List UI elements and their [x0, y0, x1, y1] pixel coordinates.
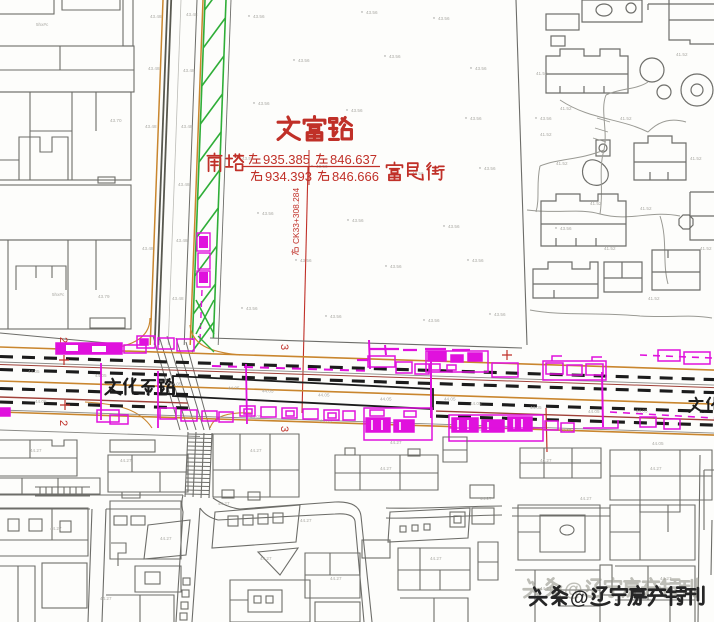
svg-text:41.52: 41.52: [536, 71, 548, 76]
svg-text:44.05: 44.05: [262, 389, 274, 394]
svg-text:44.27: 44.27: [430, 556, 442, 561]
svg-text:43.56: 43.56: [330, 314, 342, 319]
svg-text:44.05: 44.05: [470, 401, 482, 406]
svg-text:44.27: 44.27: [250, 448, 262, 453]
svg-text:44.27: 44.27: [380, 466, 392, 471]
svg-text:44.27: 44.27: [650, 466, 662, 471]
svg-text:43.56: 43.56: [390, 264, 402, 269]
svg-text:43.48: 43.48: [181, 124, 193, 129]
svg-text:43.48: 43.48: [186, 12, 198, 17]
svg-text:44.27: 44.27: [100, 596, 112, 601]
svg-text:43.48: 43.48: [178, 182, 190, 187]
svg-text:41.52: 41.52: [590, 201, 602, 206]
svg-text:44.27: 44.27: [330, 576, 342, 581]
svg-text:44.27: 44.27: [300, 518, 312, 523]
svg-text:@: @: [570, 588, 589, 609]
svg-text:41.52: 41.52: [540, 132, 552, 137]
svg-text:44.27: 44.27: [540, 458, 552, 463]
svg-text:44.05: 44.05: [380, 396, 392, 401]
svg-text:43.56: 43.56: [475, 66, 487, 71]
svg-text:41.52: 41.52: [620, 116, 632, 121]
svg-text:43.56: 43.56: [258, 101, 270, 106]
svg-text:44.27: 44.27: [390, 440, 402, 445]
svg-text:43.48: 43.48: [145, 124, 157, 129]
svg-text:43.56: 43.56: [438, 16, 450, 21]
svg-text:44.05: 44.05: [320, 418, 332, 423]
svg-text:3: 3: [278, 426, 290, 432]
svg-text:44.05: 44.05: [28, 369, 40, 374]
svg-text:43.56: 43.56: [540, 116, 552, 121]
svg-text:44.05: 44.05: [652, 441, 664, 446]
svg-text:43.56: 43.56: [351, 108, 363, 113]
svg-text:43.56: 43.56: [262, 211, 274, 216]
svg-text:41.52: 41.52: [676, 52, 688, 57]
svg-text:846.637: 846.637: [330, 152, 377, 167]
svg-text:43.48: 43.48: [148, 66, 160, 71]
svg-text:44.05: 44.05: [588, 409, 600, 414]
svg-text:44.05: 44.05: [318, 392, 330, 397]
svg-text:44.27: 44.27: [120, 458, 132, 463]
svg-text:CK33+308.284: CK33+308.284: [291, 188, 301, 244]
svg-text:2: 2: [57, 420, 69, 426]
svg-text:43.79: 43.79: [98, 294, 110, 299]
svg-text:43.56: 43.56: [389, 54, 401, 59]
svg-text:935.385: 935.385: [263, 152, 310, 167]
svg-text:44.05: 44.05: [228, 385, 240, 390]
svg-text:44.27: 44.27: [50, 526, 62, 531]
svg-text:43.56: 43.56: [472, 258, 484, 263]
svg-text:41.52: 41.52: [700, 246, 712, 251]
svg-text:43.48: 43.48: [150, 14, 162, 19]
svg-text:43.56: 43.56: [470, 116, 482, 121]
svg-text:43.56: 43.56: [494, 312, 506, 317]
svg-text:44.05: 44.05: [170, 382, 182, 387]
svg-text:44.05: 44.05: [35, 399, 47, 404]
svg-text:44.27: 44.27: [260, 556, 272, 561]
svg-text:44.27: 44.27: [218, 501, 230, 506]
svg-text:43.48: 43.48: [172, 296, 184, 301]
svg-text:43.56: 43.56: [352, 218, 364, 223]
svg-text:43.56: 43.56: [253, 14, 265, 19]
svg-text:44.05: 44.05: [636, 409, 648, 414]
svg-text:3: 3: [278, 344, 290, 350]
svg-text:41.52: 41.52: [640, 206, 652, 211]
svg-text:41.52: 41.52: [560, 106, 572, 111]
svg-text:44.27: 44.27: [30, 448, 42, 453]
svg-text:44.27: 44.27: [580, 496, 592, 501]
svg-text:43.48: 43.48: [142, 246, 154, 251]
svg-text:43.56: 43.56: [246, 306, 258, 311]
svg-text:43.48: 43.48: [176, 238, 188, 243]
svg-text:43.56: 43.56: [428, 318, 440, 323]
svg-text:41.52: 41.52: [604, 246, 616, 251]
svg-text:5hx#c: 5hx#c: [36, 22, 49, 27]
svg-text:43.56: 43.56: [448, 224, 460, 229]
svg-text:5hx#c: 5hx#c: [52, 292, 65, 297]
svg-text:44.27: 44.27: [480, 496, 492, 501]
svg-text:43.56: 43.56: [484, 166, 496, 171]
svg-text:44.05: 44.05: [530, 405, 542, 410]
svg-text:44.27: 44.27: [160, 536, 172, 541]
svg-text:934.393: 934.393: [265, 169, 312, 184]
svg-text:44.05: 44.05: [444, 396, 456, 401]
svg-text:41.52: 41.52: [556, 161, 568, 166]
svg-text:2: 2: [57, 337, 69, 343]
svg-text:43.48: 43.48: [183, 68, 195, 73]
svg-text:43.56: 43.56: [298, 58, 310, 63]
svg-text:43.70: 43.70: [110, 118, 122, 123]
svg-text:41.52: 41.52: [648, 296, 660, 301]
svg-text:43.56: 43.56: [366, 10, 378, 15]
svg-text:41.52: 41.52: [690, 156, 702, 161]
svg-text:846.666: 846.666: [332, 169, 379, 184]
svg-text:43.56: 43.56: [560, 226, 572, 231]
